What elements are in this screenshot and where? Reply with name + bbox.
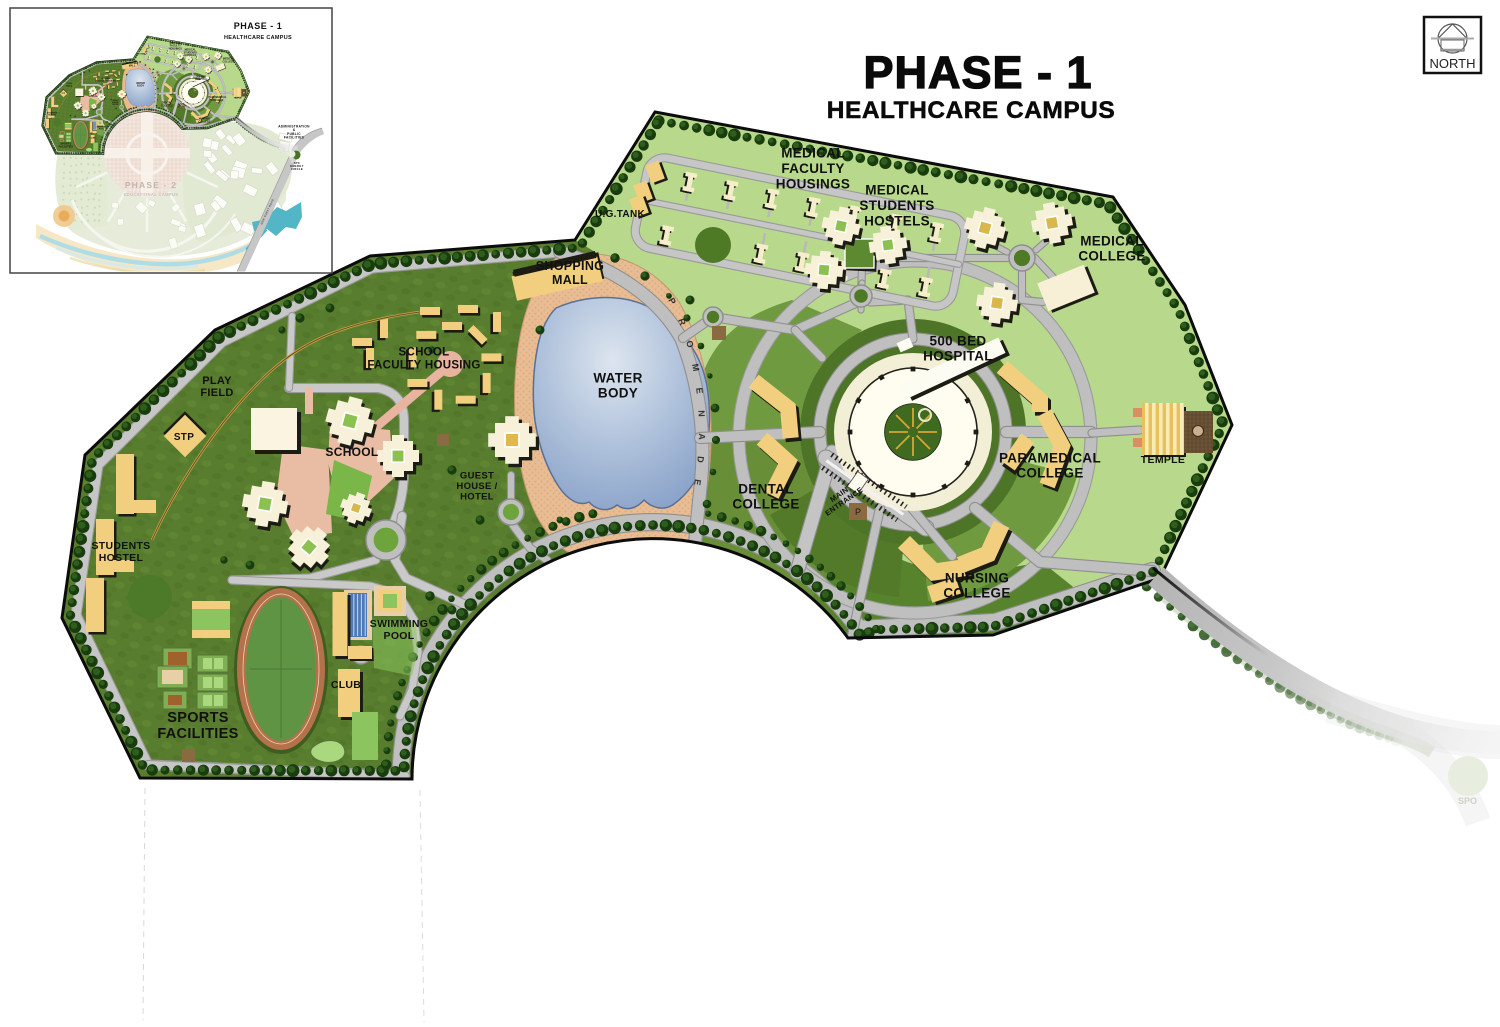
- svg-text:PHASE - 2: PHASE - 2: [125, 180, 177, 190]
- svg-text:NORTH: NORTH: [1430, 56, 1476, 71]
- svg-text:PHASE - 1: PHASE - 1: [234, 21, 283, 31]
- svg-text:EDUCATIONAL CAMPUS: EDUCATIONAL CAMPUS: [124, 192, 179, 197]
- svg-text:HEALTHCARE CAMPUS: HEALTHCARE CAMPUS: [827, 97, 1115, 124]
- svg-text:HEALTHCARE CAMPUS: HEALTHCARE CAMPUS: [224, 35, 292, 41]
- svg-text:PHASE - 1: PHASE - 1: [863, 47, 1092, 98]
